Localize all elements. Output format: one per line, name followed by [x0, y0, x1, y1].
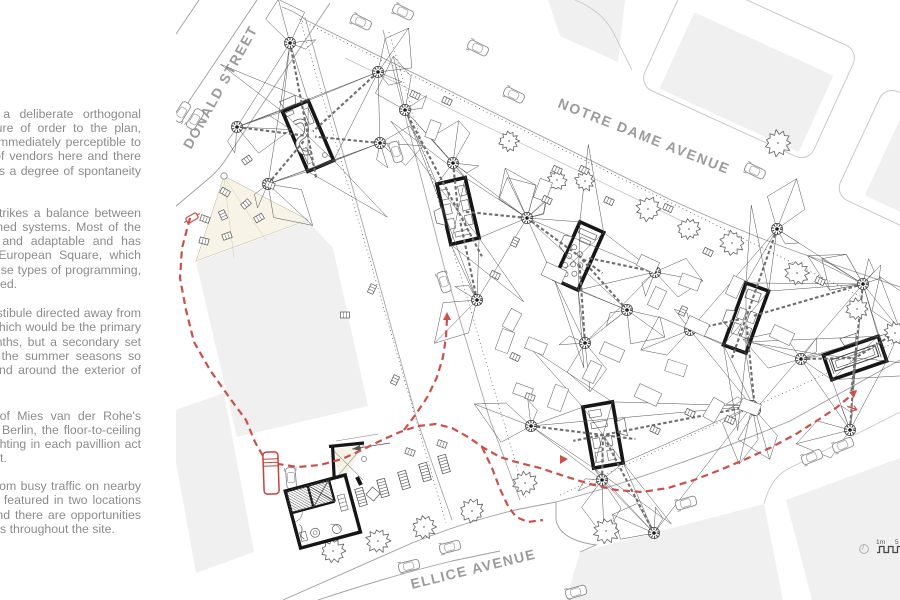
svg-text:1m: 1m — [876, 539, 885, 546]
svg-text:DONALD STREET: DONALD STREET — [180, 23, 261, 152]
svg-text:ELLICE AVENUE: ELLICE AVENUE — [409, 546, 538, 592]
svg-text:5: 5 — [895, 539, 899, 546]
